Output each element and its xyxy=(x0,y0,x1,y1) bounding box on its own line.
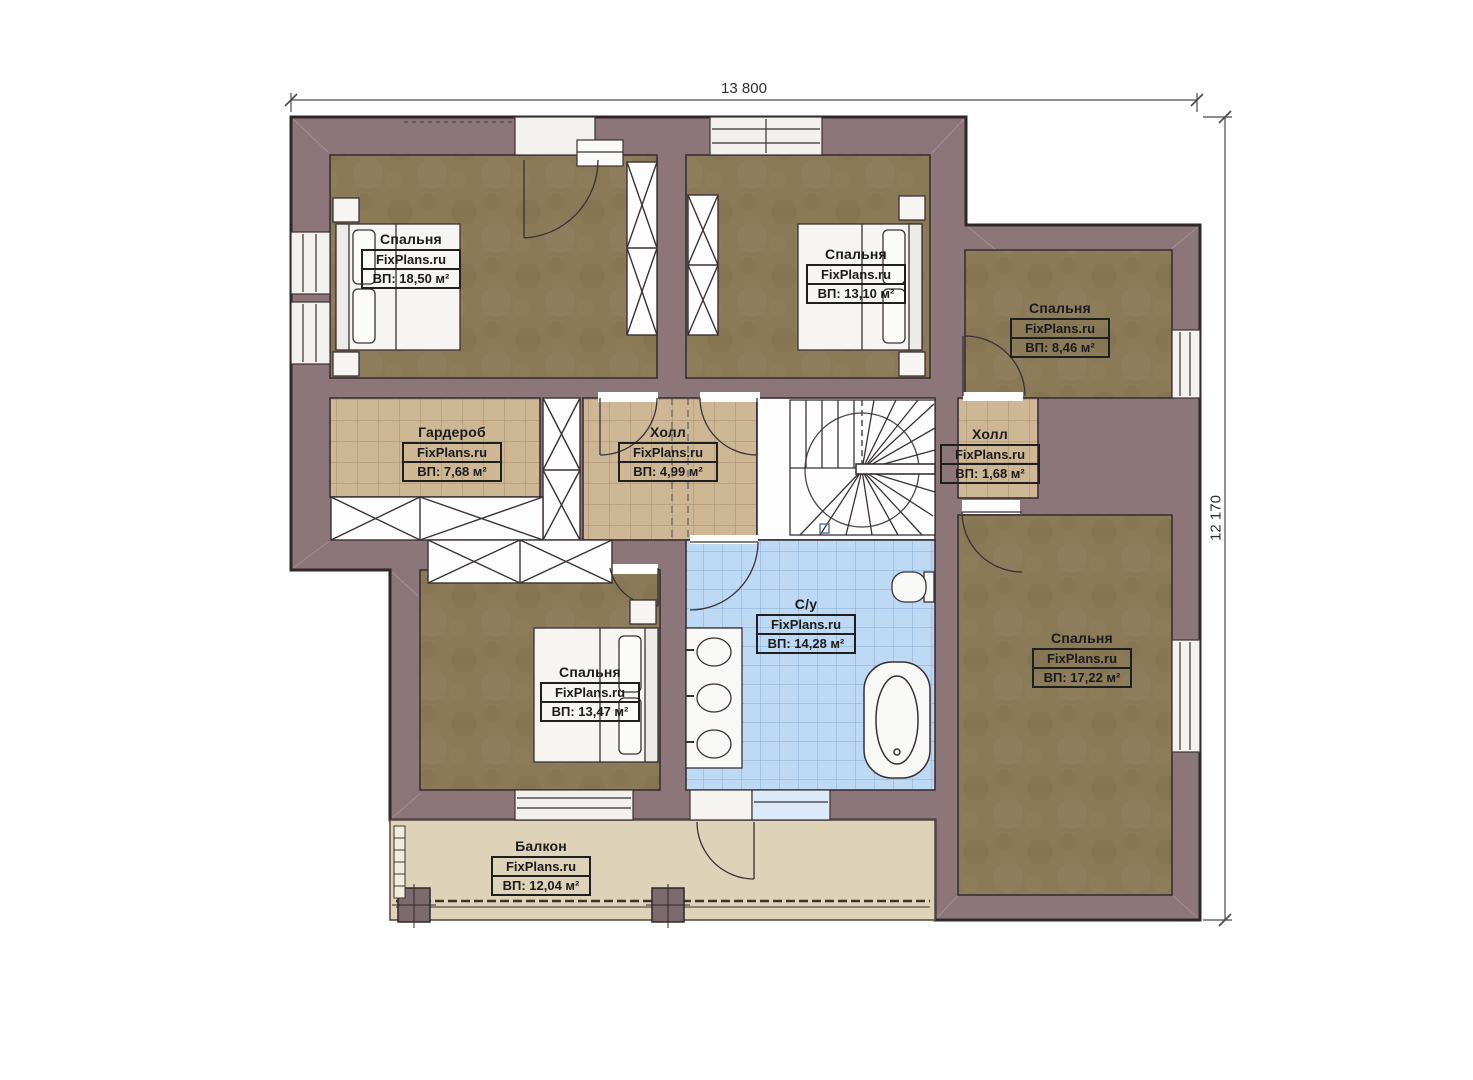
room-info-box: FixPlans.ru ВП: 7,68 м² xyxy=(402,442,502,482)
room-name: Холл xyxy=(940,426,1040,442)
room-label-hall-small: Холл FixPlans.ru ВП: 1,68 м² xyxy=(940,426,1040,484)
room-label-balcony: Балкон FixPlans.ru ВП: 12,04 м² xyxy=(491,838,591,896)
watermark-text: FixPlans.ru xyxy=(808,266,904,285)
watermark-text: FixPlans.ru xyxy=(942,446,1038,465)
room-label-hall: Холл FixPlans.ru ВП: 4,99 м² xyxy=(618,424,718,482)
room-label-bathroom: С/у FixPlans.ru ВП: 14,28 м² xyxy=(756,596,856,654)
room-area: ВП: 7,68 м² xyxy=(404,463,500,480)
room-area: ВП: 8,46 м² xyxy=(1012,339,1108,356)
watermark-text: FixPlans.ru xyxy=(404,444,500,463)
room-info-box: FixPlans.ru ВП: 12,04 м² xyxy=(491,856,591,896)
room-area: ВП: 14,28 м² xyxy=(758,635,854,652)
room-name: Спальня xyxy=(540,664,640,680)
closet-bedroom-2 xyxy=(688,195,718,335)
room-label-bedroom-3: Спальня FixPlans.ru ВП: 8,46 м² xyxy=(1010,300,1110,358)
watermark-text: FixPlans.ru xyxy=(1034,650,1130,669)
balcony-door-opening xyxy=(690,790,752,820)
room-name: Спальня xyxy=(1032,630,1132,646)
room-info-box: FixPlans.ru ВП: 13,47 м² xyxy=(540,682,640,722)
watermark-text: FixPlans.ru xyxy=(542,684,638,703)
closet-wardrobe-row xyxy=(331,497,543,540)
room-label-bedroom-2: Спальня FixPlans.ru ВП: 13,10 м² xyxy=(806,246,906,304)
room-area: ВП: 18,50 м² xyxy=(363,270,459,287)
room-name: Гардероб xyxy=(402,424,502,440)
bedroom-5-floor xyxy=(958,515,1172,895)
room-info-box: FixPlans.ru ВП: 18,50 м² xyxy=(361,249,461,289)
watermark-text: FixPlans.ru xyxy=(363,251,459,270)
room-area: ВП: 12,04 м² xyxy=(493,877,589,894)
room-name: С/у xyxy=(756,596,856,612)
closet-wardrobe-vertical xyxy=(543,398,580,540)
room-name: Спальня xyxy=(361,231,461,247)
room-name: Спальня xyxy=(806,246,906,262)
room-info-box: FixPlans.ru ВП: 8,46 м² xyxy=(1010,318,1110,358)
room-area: ВП: 1,68 м² xyxy=(942,465,1038,482)
room-info-box: FixPlans.ru ВП: 1,68 м² xyxy=(940,444,1040,484)
room-name: Спальня xyxy=(1010,300,1110,316)
balcony-sidelight xyxy=(752,790,830,820)
room-info-box: FixPlans.ru ВП: 4,99 м² xyxy=(618,442,718,482)
window-bedroom-4 xyxy=(515,790,633,820)
floor-plan-drawing xyxy=(0,0,1473,1080)
room-name: Балкон xyxy=(491,838,591,854)
room-area: ВП: 4,99 м² xyxy=(620,463,716,480)
closet-bedroom-4-row xyxy=(428,540,612,583)
bathtub xyxy=(864,662,930,778)
floor-plan: 13 800 12 170 Спальня FixPlans.ru ВП: 18… xyxy=(0,0,1473,1080)
room-area: ВП: 13,10 м² xyxy=(808,285,904,302)
watermark-text: FixPlans.ru xyxy=(620,444,716,463)
room-area: ВП: 13,47 м² xyxy=(542,703,638,720)
watermark-text: FixPlans.ru xyxy=(493,858,589,877)
balcony-side-rail xyxy=(394,826,405,898)
room-info-box: FixPlans.ru ВП: 14,28 м² xyxy=(756,614,856,654)
watermark-text: FixPlans.ru xyxy=(758,616,854,635)
room-label-wardrobe: Гардероб FixPlans.ru ВП: 7,68 м² xyxy=(402,424,502,482)
room-label-bedroom-5: Спальня FixPlans.ru ВП: 17,22 м² xyxy=(1032,630,1132,688)
dimension-height: 12 170 xyxy=(1208,495,1225,541)
room-label-bedroom-1: Спальня FixPlans.ru ВП: 18,50 м² xyxy=(361,231,461,289)
room-name: Холл xyxy=(618,424,718,440)
window-bedroom-3 xyxy=(1172,330,1200,398)
toilet xyxy=(892,572,934,602)
room-info-box: FixPlans.ru ВП: 17,22 м² xyxy=(1032,648,1132,688)
window-bedroom-5 xyxy=(1172,640,1200,752)
closet-bedroom-1 xyxy=(627,162,657,335)
watermark-text: FixPlans.ru xyxy=(1012,320,1108,339)
room-label-bedroom-4: Спальня FixPlans.ru ВП: 13,47 м² xyxy=(540,664,640,722)
dimension-width: 13 800 xyxy=(721,80,767,97)
stair-landing xyxy=(856,464,935,474)
staircase xyxy=(790,400,935,535)
balcony-deck xyxy=(390,820,935,928)
vanity-sinks xyxy=(686,628,742,768)
room-info-box: FixPlans.ru ВП: 13,10 м² xyxy=(806,264,906,304)
room-area: ВП: 17,22 м² xyxy=(1034,669,1130,686)
window-bedroom-2 xyxy=(710,117,822,155)
